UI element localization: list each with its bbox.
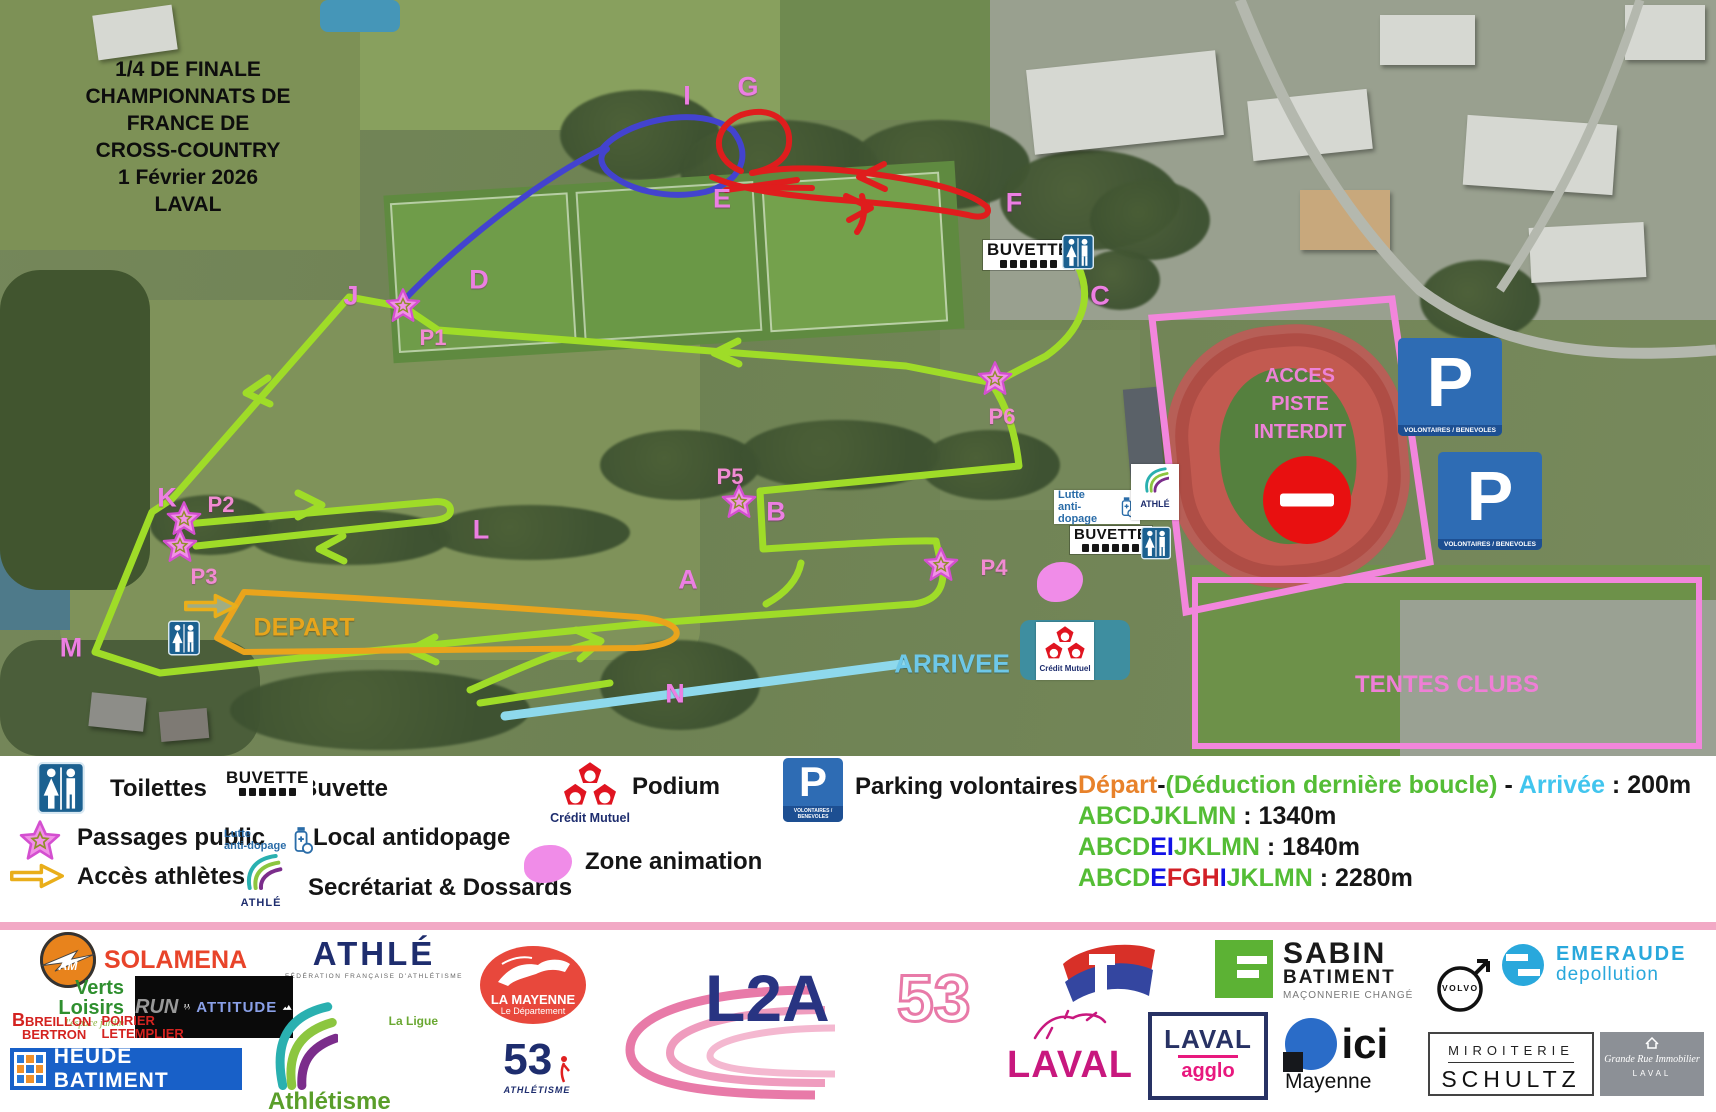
buvette-sign-stadium: BUVETTE xyxy=(1070,526,1152,554)
legend-zone-animation: Zone animation xyxy=(585,848,762,876)
sabin-icon xyxy=(1215,940,1273,998)
toilets-icon-stadium xyxy=(1141,526,1171,560)
passage-star-P3 xyxy=(162,528,198,569)
distance-line-1: Départ-(Déduction dernière boucle) - Arr… xyxy=(1078,770,1691,801)
sponsor-band: AM SOLAMENA ATHLÉ FÉDÉRATION FRANÇAISE D… xyxy=(0,930,1716,1112)
antidoping-bottle-icon xyxy=(291,826,313,854)
runner-icon xyxy=(557,1055,571,1085)
no-entry-icon xyxy=(1263,456,1351,544)
sponsor-volvo: VOLVO xyxy=(1432,955,1494,1017)
toilets-legend-icon xyxy=(34,762,88,814)
secretariat-athle-box: ATHLÉ xyxy=(1131,464,1179,520)
heude-grid-icon xyxy=(14,1052,46,1086)
runners-icon xyxy=(183,998,191,1016)
course-letter-C: C xyxy=(1090,281,1110,312)
passage-star-P4 xyxy=(923,547,959,588)
toilets-icon-depart xyxy=(168,620,200,656)
course-letter-D: D xyxy=(469,265,489,296)
parking-legend-icon: P VOLONTAIRES / BENEVOLES xyxy=(783,758,843,822)
passage-star-P6 xyxy=(977,361,1013,402)
legend-podium: Podium xyxy=(632,773,720,801)
sponsor-athle-ffa: ATHLÉ FÉDÉRATION FRANÇAISE D'ATHLÉTISME xyxy=(285,938,463,980)
buvette-sign-north: BUVETTE xyxy=(983,240,1074,270)
course-letter-N: N xyxy=(665,679,685,710)
ligue-swirl-icon xyxy=(1141,466,1169,494)
legend-band: Toilettes BUVETTE Buvette Passages publi… xyxy=(0,756,1716,922)
course-letter-B: B xyxy=(766,497,786,528)
passage-label-P4: P4 xyxy=(981,555,1008,581)
depart-label: DEPART xyxy=(254,614,355,643)
course-letter-E: E xyxy=(713,184,731,215)
credit-mutuel-icon xyxy=(1045,625,1085,659)
stadium-forbidden-outline xyxy=(1152,299,1430,612)
ici-icon xyxy=(1285,1018,1337,1070)
course-letter-J: J xyxy=(343,281,358,312)
passage-label-P5: P5 xyxy=(717,464,744,490)
course-distances: Départ-(Déduction dernière boucle) - Arr… xyxy=(1078,770,1691,894)
horse-icon xyxy=(488,952,578,988)
legend-buvette: Buvette xyxy=(300,775,388,803)
secretariat-legend-icon: ATHLÉ xyxy=(228,852,294,909)
parking-sign-2: P VOLONTAIRES / BENEVOLES xyxy=(1438,452,1542,550)
sponsor-tj xyxy=(1055,936,1163,1012)
sponsor-l2a53: L2A 53 xyxy=(615,950,1005,1100)
sponsor-ligue-athletisme: La Ligue Athlétisme en Pays de la Loire xyxy=(268,1000,438,1112)
course-map-page: TENTES CLUBS BUVETTE BUVETTE Lutteanti-d… xyxy=(0,0,1716,1112)
antidoping-room: Lutteanti-dopage xyxy=(1054,490,1140,524)
course-letter-M: M xyxy=(60,633,83,664)
sponsor-emeraude: EMERAUDE depollution xyxy=(1500,942,1686,988)
event-title: 1/4 DE FINALECHAMPIONNATS DE FRANCE DECR… xyxy=(52,56,324,218)
pink-divider xyxy=(0,922,1716,930)
sponsor-miroiterie-schultz: MIROITERIE SCHULTZ xyxy=(1428,1032,1594,1096)
legend-local-antidopage: Local antidopage xyxy=(313,824,510,852)
sponsor-la-mayenne: LA MAYENNE Le Département xyxy=(480,946,586,1024)
sponsor-ici-mayenne: ici Mayenne xyxy=(1285,1018,1425,1094)
buvette-legend-icon: BUVETTE xyxy=(222,768,313,798)
sponsor-grande-rue: Grande Rue Immobilier LAVAL xyxy=(1600,1032,1704,1096)
passage-label-P6: P6 xyxy=(989,404,1016,430)
ligue-swirl-icon xyxy=(239,852,283,892)
arrivee-label: ARRIVEE xyxy=(894,649,1010,680)
ligue-swirl-icon xyxy=(268,1000,338,1090)
passage-star-P1 xyxy=(385,288,421,329)
passage-label-P3: P3 xyxy=(191,564,218,590)
sponsor-heude-batiment: HEUDE BATIMENT xyxy=(10,1048,242,1090)
podium-credit-mutuel: Crédit Mutuel xyxy=(1036,622,1094,680)
course-letter-I: I xyxy=(683,81,691,112)
course-letter-K: K xyxy=(157,483,177,514)
legend-toilettes: Toilettes xyxy=(110,775,207,803)
passage-label-P2: P2 xyxy=(208,492,235,518)
legend-acces-athletes: Accès athlètes xyxy=(77,863,245,891)
course-letter-F: F xyxy=(1006,188,1023,219)
credit-mutuel-icon xyxy=(564,760,616,806)
legend-parking: Parking volontaires xyxy=(855,773,1078,801)
acces-piste-interdit-label: ACCES PISTE INTERDIT xyxy=(1240,362,1360,446)
distance-line-2: ABCDJKLMN : 1340m xyxy=(1078,801,1691,832)
passage-label-P1: P1 xyxy=(420,325,447,351)
sponsor-breillon: BBREILLONBERTRON POIRIERLETEMPLIER xyxy=(12,1014,184,1041)
house-icon xyxy=(1645,1037,1659,1049)
tj-logo-icon xyxy=(1055,936,1163,1012)
antidoping-legend-icon: Lutteanti-dopage xyxy=(224,826,313,854)
laval-lion-icon xyxy=(1025,1008,1115,1042)
sponsor-53-athletisme: 53 ATHLÉTISME xyxy=(487,1038,587,1095)
podium-legend-icon: Crédit Mutuel xyxy=(548,760,632,825)
distance-line-3: ABCDEIJKLMN : 1840m xyxy=(1078,832,1691,863)
athletes-access-arrow xyxy=(184,592,238,620)
distance-line-4: ABCDEFGHIJKLMN : 2280m xyxy=(1078,863,1691,894)
course-letter-L: L xyxy=(473,515,490,546)
aerial-course-map: TENTES CLUBS BUVETTE BUVETTE Lutteanti-d… xyxy=(0,0,1716,756)
sponsor-sabin: SABIN BATIMENT MAÇONNERIE CHANGÉ xyxy=(1215,940,1413,1001)
passage-star-legend-icon xyxy=(19,820,61,867)
sponsor-laval-agglo: LAVAL agglo xyxy=(1148,1012,1268,1100)
toilets-icon-north xyxy=(1062,234,1094,270)
emeraude-icon xyxy=(1500,942,1546,988)
sponsor-laval: LAVAL xyxy=(1000,1008,1140,1083)
course-letter-A: A xyxy=(678,565,698,596)
course-letter-G: G xyxy=(737,72,758,103)
parking-sign-1: P VOLONTAIRES / BENEVOLES xyxy=(1398,338,1502,436)
